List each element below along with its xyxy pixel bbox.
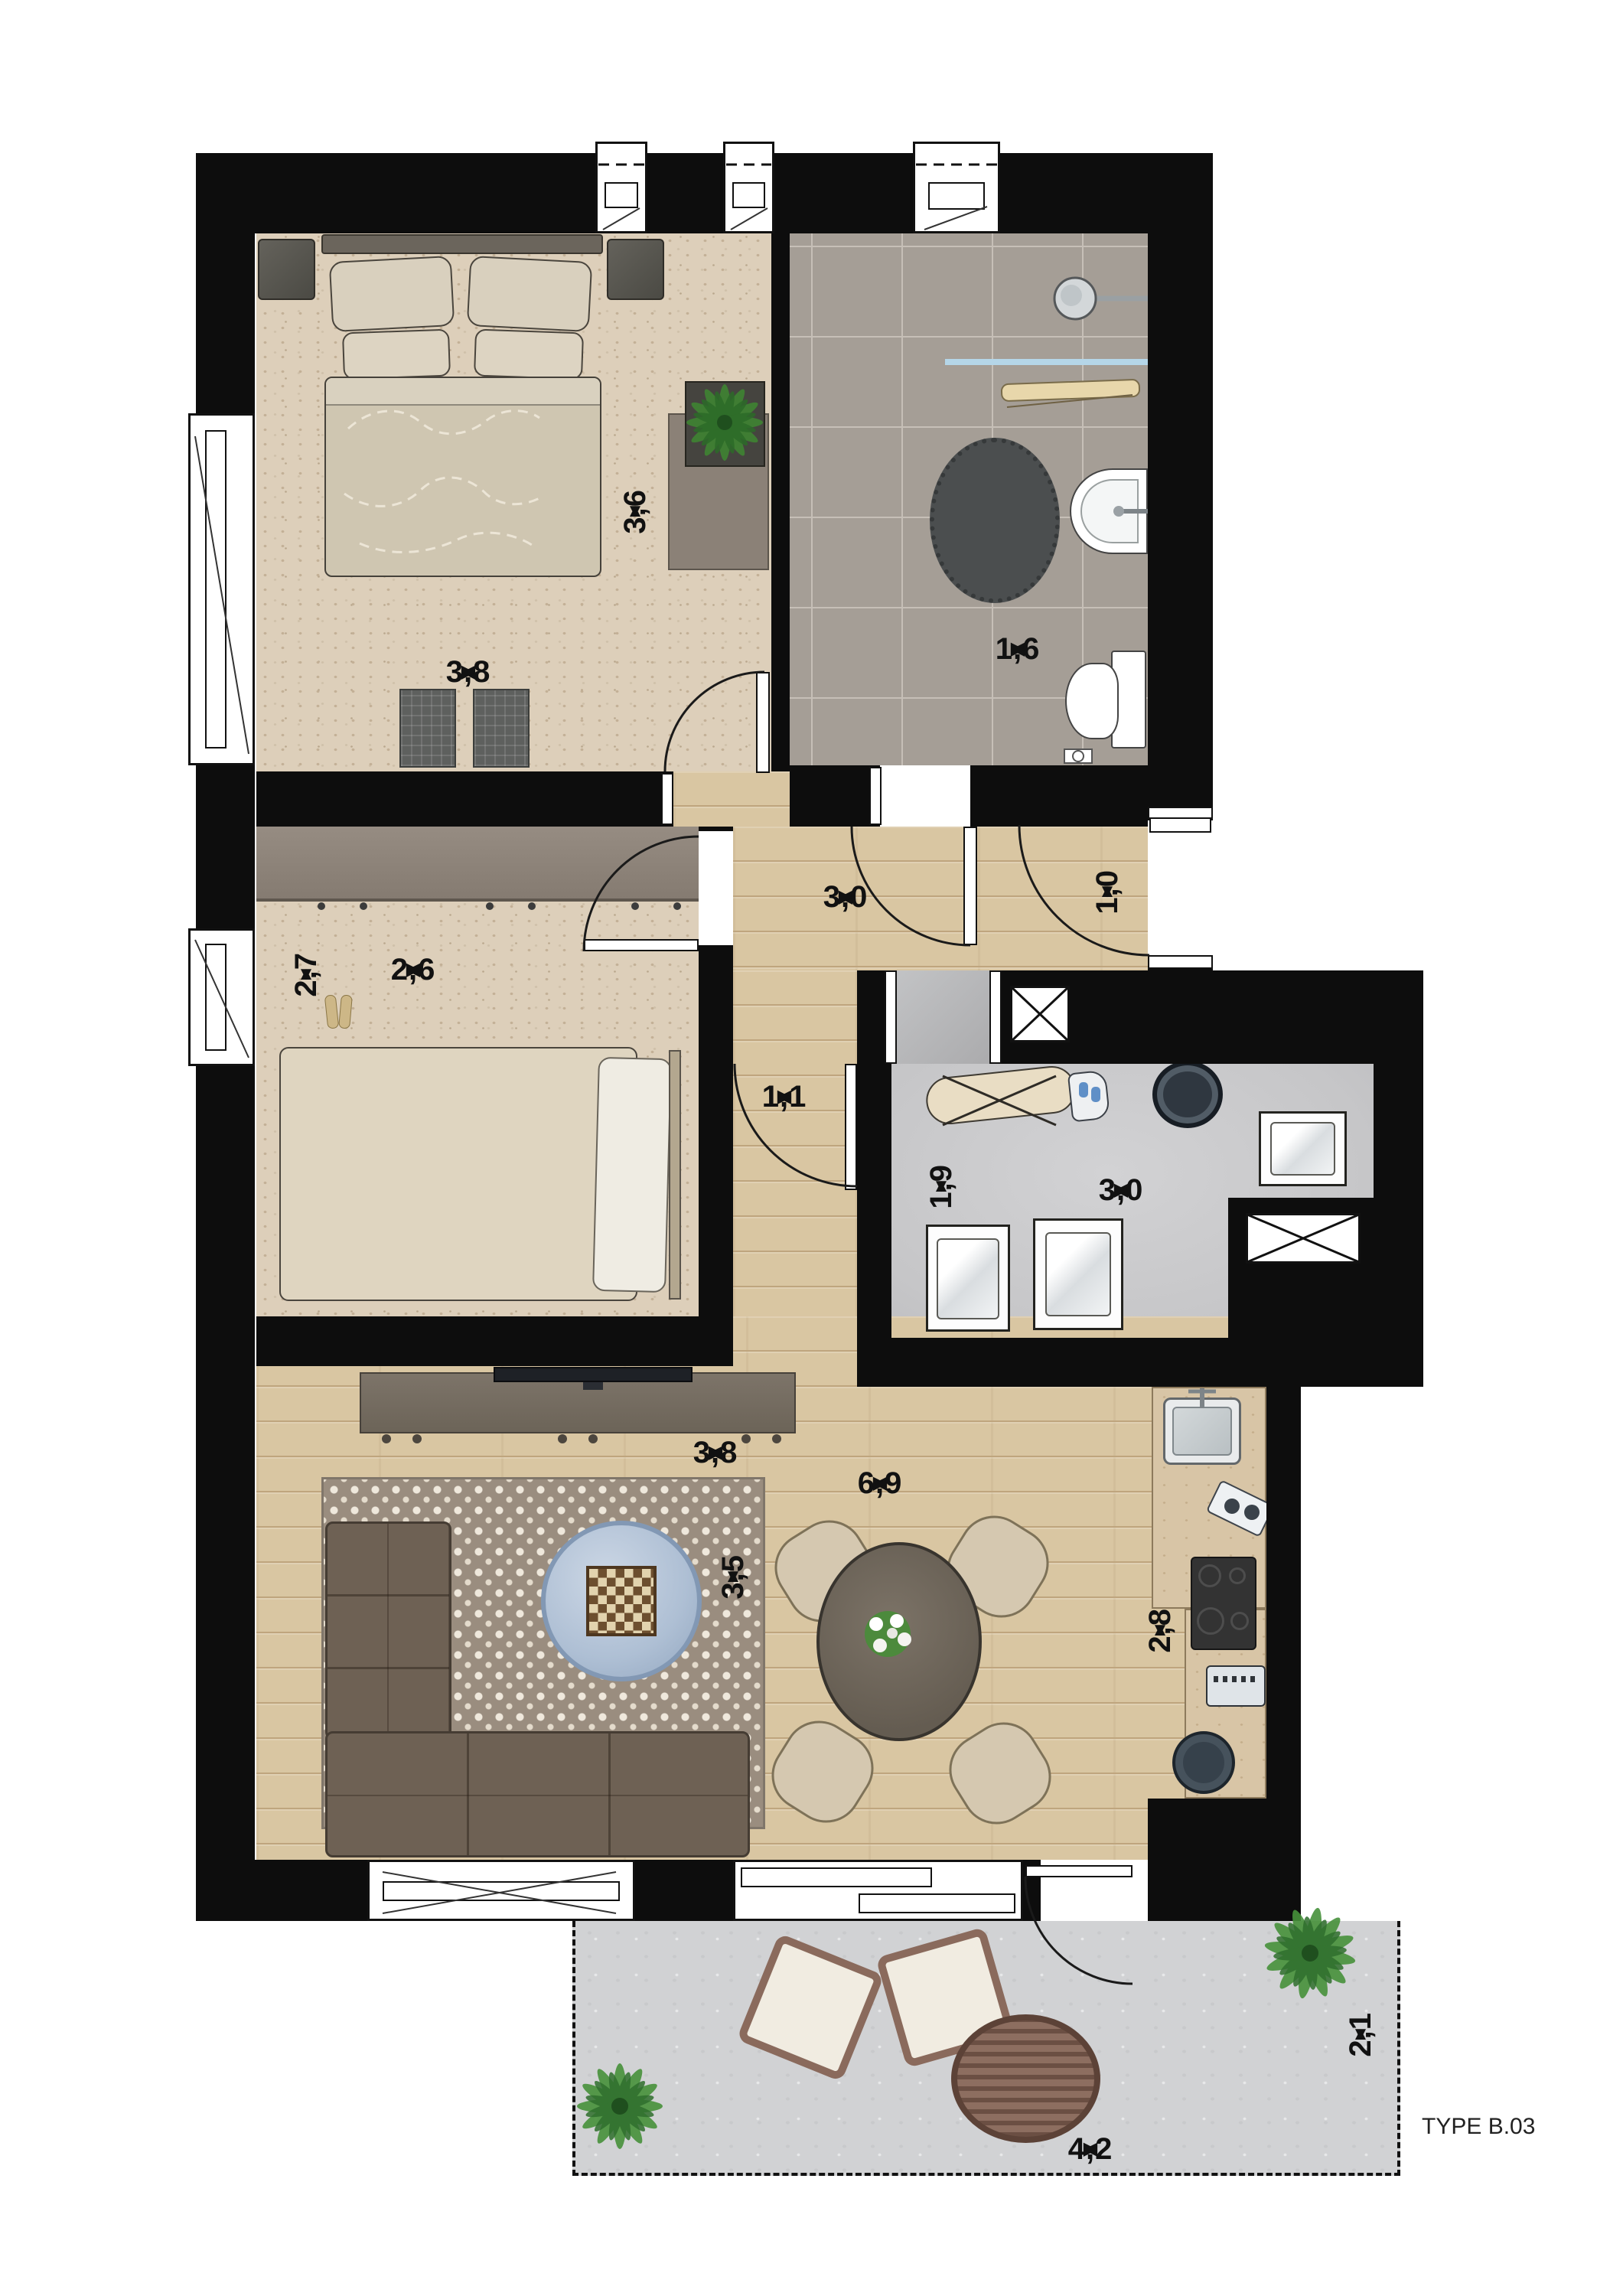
entrance-jamb xyxy=(1148,955,1213,969)
nightstand-left xyxy=(258,239,315,300)
wall-bed2-right-top xyxy=(699,827,733,831)
bedroom1-door-threshold xyxy=(673,771,790,827)
bedroom-rug xyxy=(399,689,456,768)
bath-rug xyxy=(930,438,1060,603)
wall-bottom-b xyxy=(635,1860,733,1921)
arrow-down-icon: ▼ xyxy=(1151,1621,1169,1639)
cooktop-burner xyxy=(1230,1612,1249,1630)
iron xyxy=(1067,1070,1110,1123)
wall-corridor-utility xyxy=(857,1064,891,1338)
tv xyxy=(494,1367,693,1382)
washing-machine-door xyxy=(937,1238,999,1319)
double-bed-pillow xyxy=(342,329,451,380)
hall-floor xyxy=(733,827,1149,970)
nightstand-right xyxy=(607,239,664,300)
arrow-down-icon: ▼ xyxy=(724,1567,742,1586)
plan-type-label: TYPE B.03 xyxy=(1422,2114,1535,2140)
terrace-door-leaf xyxy=(1025,1865,1133,1877)
double-bed-pillow xyxy=(467,256,593,332)
wall-bed2-bottom xyxy=(256,1316,733,1366)
living-window-sash xyxy=(383,1881,620,1901)
single-bed-duvet xyxy=(279,1047,637,1301)
arrow-right-icon: ▶ xyxy=(406,960,420,979)
fruit-bowl xyxy=(1172,1731,1235,1794)
wall-bath-bottom-right xyxy=(970,765,1148,827)
bedroom1-door-jamb xyxy=(661,773,673,825)
wardrobe xyxy=(256,827,699,902)
bedroom-rug xyxy=(473,689,530,768)
vent-window-inner xyxy=(732,182,765,208)
bedroom2-window-sash xyxy=(205,944,227,1051)
laundry-basket xyxy=(1152,1061,1223,1128)
cooktop-burner xyxy=(1229,1567,1246,1584)
utility-door-mat xyxy=(897,970,989,1064)
arrow-right-icon: ▶ xyxy=(461,663,475,681)
arrow-down-icon: ▼ xyxy=(626,502,644,520)
wall-bed2-right xyxy=(699,945,733,1338)
arrow-down-icon: ▼ xyxy=(1351,2025,1370,2043)
arrow-right-icon: ▶ xyxy=(1011,640,1025,658)
cooktop-burner xyxy=(1197,1607,1224,1635)
dryer-door xyxy=(1045,1232,1111,1316)
vent-window-inner xyxy=(928,182,985,210)
toilet-paper-holder xyxy=(1064,748,1093,764)
double-bed-duvet xyxy=(324,377,601,577)
iron-detail xyxy=(1079,1082,1088,1097)
wall-bottom-right-corner xyxy=(1148,1799,1301,1921)
wall-bed1-bath xyxy=(771,233,790,771)
double-bed-pillow xyxy=(474,329,584,380)
toaster xyxy=(1206,1665,1266,1707)
sofa-chaise xyxy=(325,1521,451,1740)
terrace-table xyxy=(951,2014,1100,2143)
wall-right-upper xyxy=(1148,153,1213,819)
wall-top xyxy=(196,153,1213,233)
double-bed-duvet-fold xyxy=(326,378,600,406)
bathroom-door-jamb xyxy=(869,767,882,825)
arrow-right-icon: ▶ xyxy=(1084,2140,1097,2158)
sliding-window-pane xyxy=(741,1867,932,1887)
utility-door-jamb xyxy=(885,970,897,1064)
washbasin-bowl xyxy=(1080,479,1139,543)
utility-door-jamb xyxy=(989,970,1002,1064)
single-bed-pillow xyxy=(592,1057,672,1293)
wall-utility-bottom xyxy=(857,1338,1374,1387)
wall-bath-bottom-left xyxy=(790,765,880,827)
arrow-right-icon: ▶ xyxy=(839,888,852,906)
planter xyxy=(685,381,765,467)
arrow-down-icon: ▼ xyxy=(932,1177,950,1195)
living-door-leaf xyxy=(845,1064,857,1190)
wall-bottom-a xyxy=(196,1860,367,1921)
bedroom1-window-sash xyxy=(205,430,227,748)
entrance-opening xyxy=(1148,819,1213,957)
shaft-box xyxy=(1246,1213,1361,1264)
double-bed-pillow xyxy=(329,256,455,332)
bedroom1-door-leaf xyxy=(756,672,770,773)
double-bed-headboard xyxy=(321,234,603,254)
single-bed-headboard xyxy=(669,1050,681,1300)
toilet-bowl xyxy=(1065,663,1119,739)
tv-stand xyxy=(583,1382,603,1390)
sliding-window-pane xyxy=(859,1893,1015,1913)
floor-plan: ◀ 3,8 ▶ ▲ 3,6 ▼ ◀ 1,6 ▶ ◀ 3,0 ▶ ▲ 1,0 ▼ … xyxy=(0,0,1623,2296)
dining-table xyxy=(816,1542,982,1741)
arrow-right-icon: ▶ xyxy=(1114,1181,1128,1199)
arrow-down-icon: ▼ xyxy=(297,965,315,983)
arrow-right-icon: ▶ xyxy=(709,1443,722,1462)
appliance-door xyxy=(1270,1122,1335,1176)
entrance-door-leaf xyxy=(1149,817,1211,833)
arrow-right-icon: ▶ xyxy=(777,1088,791,1106)
wall-utility-right xyxy=(1374,1064,1423,1387)
arrow-right-icon: ▶ xyxy=(873,1474,887,1492)
shaft-box xyxy=(1010,986,1070,1042)
chess-board xyxy=(586,1566,657,1636)
arrow-down-icon: ▼ xyxy=(1098,882,1116,901)
bedroom2-door-leaf xyxy=(584,939,699,951)
coffee-grinder-dial xyxy=(1244,1505,1260,1520)
sofa xyxy=(325,1731,750,1857)
wall-bed1-bottom xyxy=(256,771,673,827)
bathroom-door-leaf xyxy=(963,827,977,945)
vent-window-inner xyxy=(605,182,638,208)
kitchen-sink-basin xyxy=(1172,1407,1232,1456)
wall-kitchen-right xyxy=(1266,1387,1301,1799)
iron-detail xyxy=(1091,1087,1100,1102)
cooktop-burner xyxy=(1198,1564,1221,1587)
